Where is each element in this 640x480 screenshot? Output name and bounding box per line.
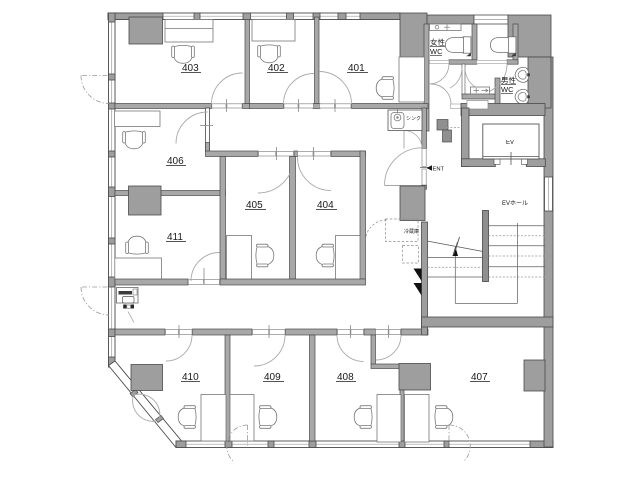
svg-text:シンク: シンク — [406, 116, 421, 122]
svg-text:冷蔵庫: 冷蔵庫 — [404, 228, 419, 235]
svg-text:女性: 女性 — [430, 37, 445, 47]
svg-text:ENT: ENT — [433, 167, 445, 173]
svg-text:EV: EV — [506, 140, 514, 146]
svg-text:WC: WC — [501, 85, 514, 94]
svg-text:男性: 男性 — [501, 75, 516, 85]
svg-text:WC: WC — [430, 47, 443, 56]
svg-text:EVホール: EVホール — [502, 200, 528, 207]
